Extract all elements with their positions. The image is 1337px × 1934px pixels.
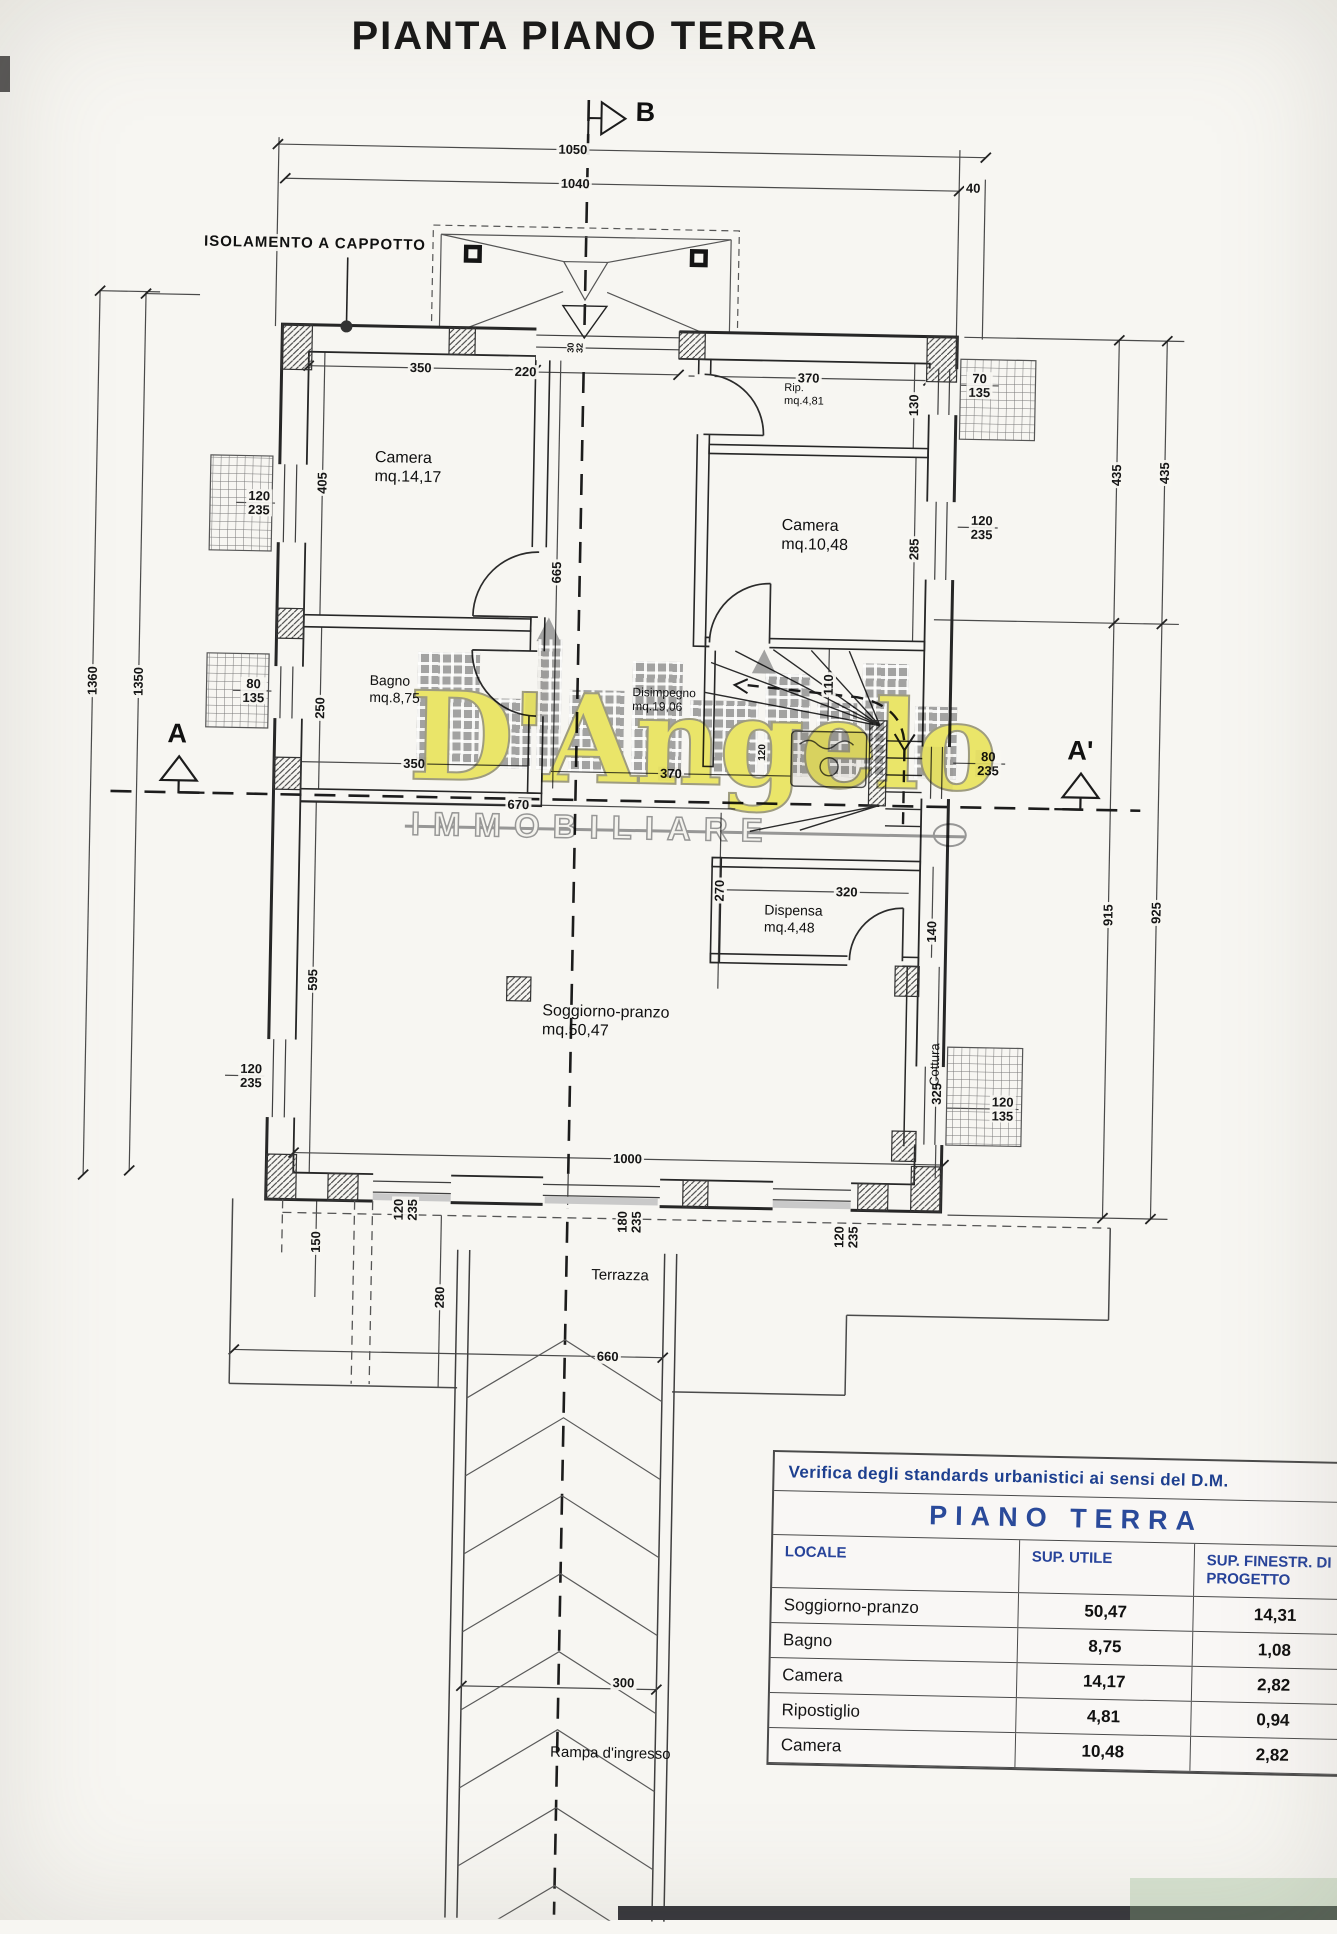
table-cell: 14,31 xyxy=(1193,1597,1337,1634)
dim-label: 1050 xyxy=(556,143,589,157)
dim-label: 670 xyxy=(505,798,531,812)
dim-label: 80 135 xyxy=(240,677,266,705)
dim-label: 915 xyxy=(1101,902,1115,928)
room-label: Terrazza xyxy=(591,1266,649,1285)
scan-tint-artifact xyxy=(1130,1878,1337,1920)
room-label: Soggiorno-pranzomq.50,47 xyxy=(542,1001,670,1042)
table-cell: 4,81 xyxy=(1016,1698,1192,1736)
dim-label: 130 xyxy=(907,392,921,418)
dim-label: 595 xyxy=(306,967,320,993)
table-cell: 50,47 xyxy=(1018,1593,1194,1631)
page-title: PIANTA PIANO TERRA xyxy=(351,14,818,59)
dim-label: 40 xyxy=(964,181,983,195)
table-cell: 10,48 xyxy=(1015,1733,1191,1771)
table-cell: Soggiorno-pranzo xyxy=(771,1588,1019,1627)
dim-label: 120 xyxy=(758,742,769,763)
room-label: Dispensamq.4,48 xyxy=(764,902,823,937)
dim-label: 320 xyxy=(834,885,860,899)
dim-label: 120 235 xyxy=(246,489,272,517)
dim-label: 285 xyxy=(907,536,921,562)
room-label: Rip.mq.4,81 xyxy=(784,382,824,409)
col-sup-utile: SUP. UTILE xyxy=(1019,1540,1195,1596)
table-cell: Camera xyxy=(770,1658,1018,1697)
dim-label: 80 235 xyxy=(975,750,1001,778)
dim-label: 1350 xyxy=(131,665,145,698)
dim-label: 120 235 xyxy=(392,1197,420,1223)
dim-label: 665 xyxy=(550,560,564,586)
room-label: Disimpegnomq.19,06 xyxy=(632,685,696,715)
scan-mark-artifact xyxy=(0,56,10,92)
room-label: Cameramq.14,17 xyxy=(374,448,441,488)
dim-label: 280 xyxy=(433,1284,447,1310)
dim-label: 70 135 xyxy=(966,372,992,400)
col-locale: LOCALE xyxy=(772,1535,1020,1592)
dim-label: 220 xyxy=(513,365,539,379)
dim-label: 370 xyxy=(658,767,684,781)
table-body: Soggiorno-pranzo50,4714,31Bagno8,751,08C… xyxy=(768,1588,1337,1775)
dim-label: 925 xyxy=(1149,900,1163,926)
col-sup-finestr: SUP. FINESTR. DI PROGETTO xyxy=(1194,1544,1337,1599)
dim-label: 405 xyxy=(315,470,329,496)
room-label: Cottura xyxy=(927,1043,943,1086)
dim-label: 30 32 xyxy=(567,341,586,355)
dim-label: 660 xyxy=(595,1350,621,1364)
room-label: Rampa d'ingresso xyxy=(550,1744,671,1764)
table-cell: 2,82 xyxy=(1190,1737,1337,1774)
dim-label: 250 xyxy=(313,695,327,721)
section-marker-a: A xyxy=(167,718,187,749)
dim-label: 140 xyxy=(925,919,939,945)
dim-label: 150 xyxy=(309,1229,323,1255)
table-cell: Bagno xyxy=(771,1623,1019,1662)
table-cell: 14,17 xyxy=(1017,1663,1193,1701)
section-marker-a1: A' xyxy=(1067,735,1094,766)
dim-label: 350 xyxy=(401,757,427,771)
dim-label: 270 xyxy=(713,878,727,904)
dim-label: 120 135 xyxy=(989,1095,1015,1123)
dim-label: 435 xyxy=(1158,460,1172,486)
table-cell: 2,82 xyxy=(1192,1667,1337,1704)
dim-label: 120 235 xyxy=(832,1224,860,1250)
section-marker-b: B xyxy=(635,97,655,128)
table-cell: 8,75 xyxy=(1018,1628,1194,1666)
room-label: Cameramq.10,48 xyxy=(781,516,848,556)
dim-label: 1360 xyxy=(85,664,99,697)
table-cell: Ripostiglio xyxy=(769,1693,1017,1732)
dim-label: 435 xyxy=(1110,462,1124,488)
dim-label: 1040 xyxy=(559,177,592,191)
dim-label: 120 235 xyxy=(969,514,995,542)
dim-label: 1000 xyxy=(611,1152,644,1166)
dim-label: 120 235 xyxy=(238,1062,264,1090)
dim-label: 350 xyxy=(408,361,434,375)
standards-table: Verifica degli standards urbanistici ai … xyxy=(766,1450,1337,1777)
table-cell: 1,08 xyxy=(1193,1632,1337,1669)
table-cell: Camera xyxy=(768,1728,1016,1767)
table-cell: 0,94 xyxy=(1191,1702,1337,1739)
dim-label: 180 235 xyxy=(615,1209,643,1235)
dim-label: 110 xyxy=(822,672,836,697)
room-label: Bagnomq.8,75 xyxy=(369,672,420,707)
dim-label: 300 xyxy=(610,1676,636,1690)
